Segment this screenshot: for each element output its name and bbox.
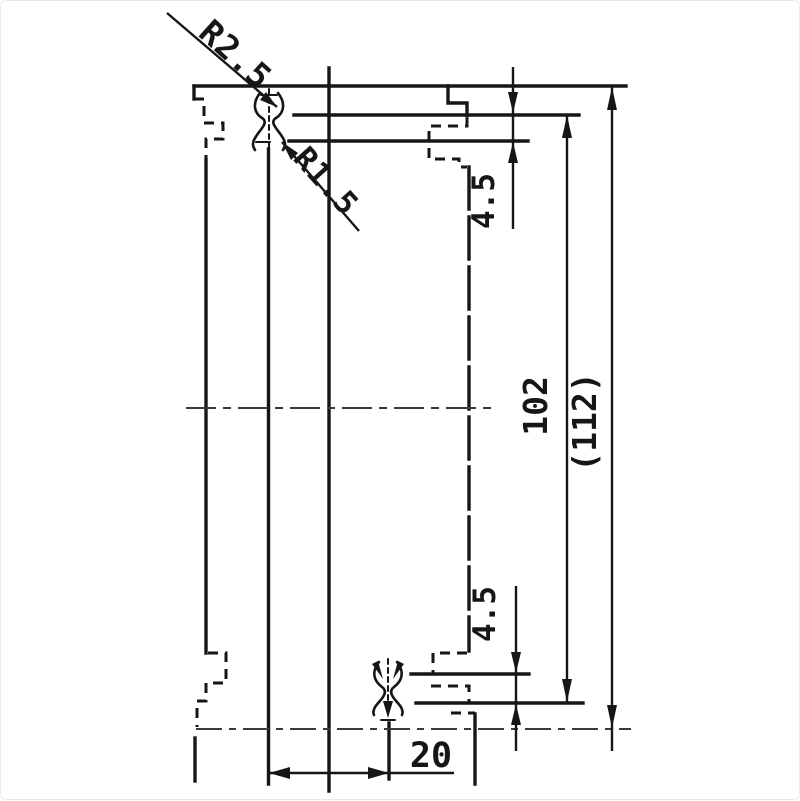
arrow-step-bottom-lower	[511, 704, 521, 725]
arrow-step-bottom-upper	[511, 652, 521, 673]
dim-text-112: (112)	[565, 372, 604, 471]
dim-text-102: 102	[516, 376, 555, 436]
radius-label-r15: R1.5	[286, 140, 365, 223]
bottom-left-staircase	[197, 653, 226, 727]
neck-arrow-down	[383, 701, 393, 718]
arrow-20-right	[368, 767, 389, 779]
arrow-112-top	[607, 87, 617, 110]
part-profile	[194, 68, 626, 791]
top-left-staircase	[194, 99, 223, 159]
top-right-step	[448, 86, 467, 116]
neck-top-right-curve	[273, 93, 285, 150]
arrow-102-top	[562, 115, 572, 138]
bottom-right-staircase-1	[433, 653, 467, 674]
radius-label-r25: R2.5	[192, 12, 280, 97]
dim-text-step-bottom: 4.5	[467, 586, 503, 642]
drawing-canvas: R2.5 R1.5 4.5 4.5 102 (112) 20	[0, 0, 800, 800]
bottom-right-staircase-2	[431, 686, 469, 703]
arrow-step-top-lower	[508, 142, 518, 163]
arrow-102-bottom	[562, 679, 572, 702]
technical-drawing: R2.5 R1.5 4.5 4.5 102 (112) 20	[1, 1, 800, 801]
arrow-20-left	[269, 767, 290, 779]
arrow-step-top-upper	[508, 92, 518, 113]
dim-text-20: 20	[410, 736, 452, 776]
dim-text-step-top: 4.5	[466, 173, 502, 229]
arrow-112-bottom	[607, 705, 617, 728]
